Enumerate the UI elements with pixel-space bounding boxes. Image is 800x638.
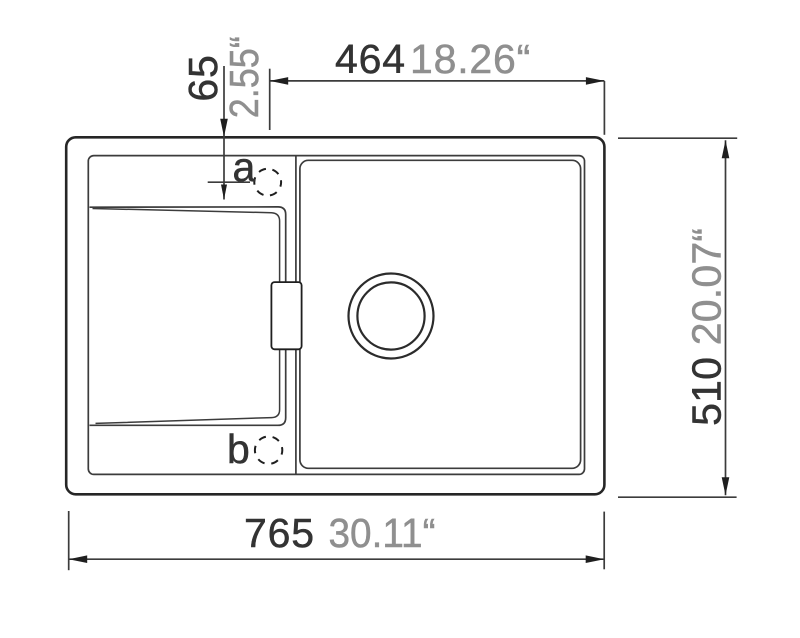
svg-text:464: 464 [335, 36, 406, 82]
svg-text:18.26“: 18.26“ [410, 36, 531, 82]
svg-text:a: a [233, 144, 256, 190]
svg-text:65: 65 [180, 54, 226, 101]
svg-text:2.55“: 2.55“ [221, 36, 267, 118]
svg-text:30.11“: 30.11“ [329, 510, 436, 556]
svg-text:510 20.07“: 510 20.07“ [684, 228, 730, 426]
svg-text:765: 765 [244, 510, 315, 556]
svg-text:b: b [227, 426, 250, 472]
